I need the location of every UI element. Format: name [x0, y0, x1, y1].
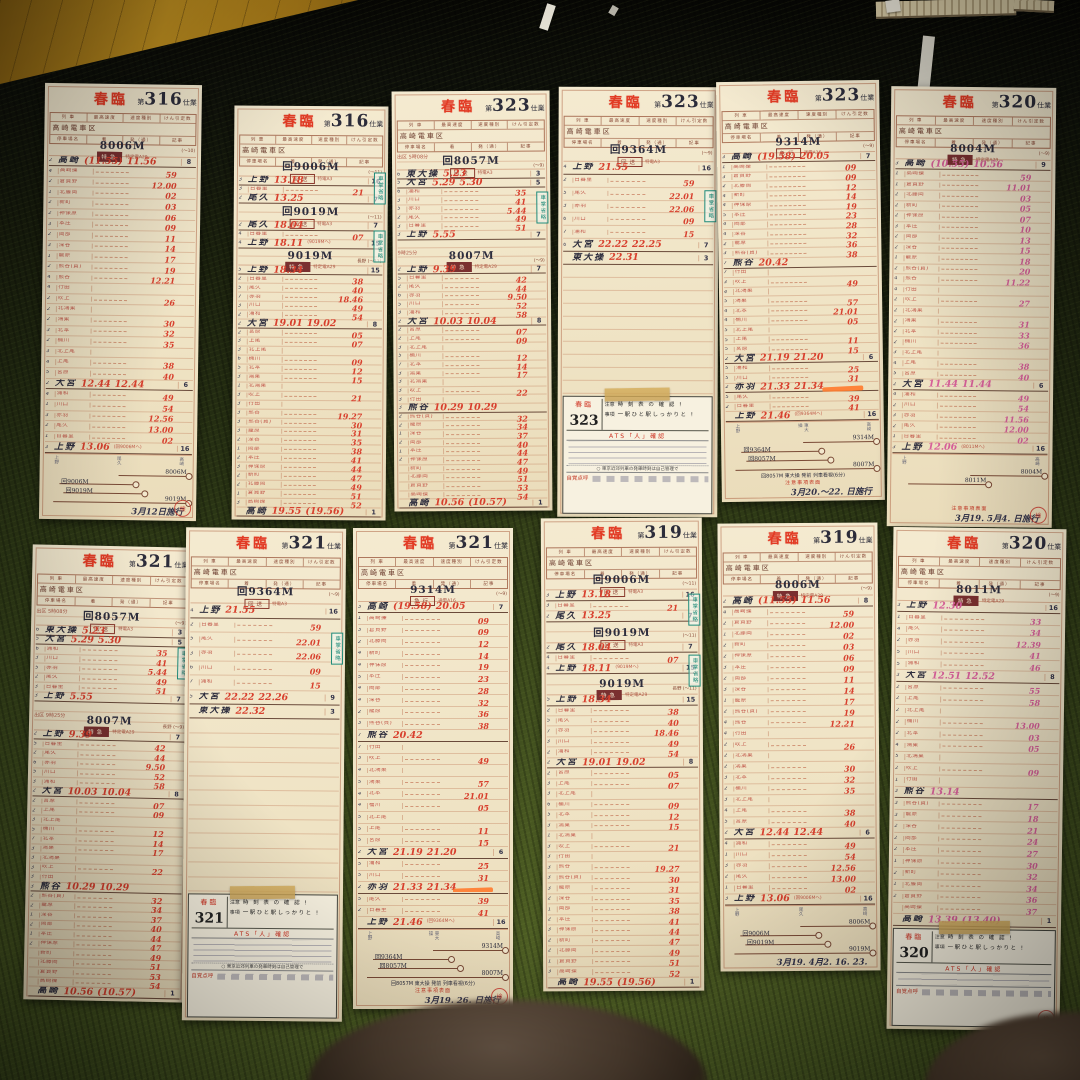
- margin-tick: 2: [894, 847, 903, 852]
- margin-tick: 2: [894, 298, 903, 303]
- self-check-row: 自覚点呼: [896, 985, 1051, 997]
- harurin-stamp: 春臨: [282, 111, 316, 131]
- diagram-train-line: 8007M: [736, 468, 877, 471]
- margin-tick: 2: [238, 321, 247, 326]
- margin-tick: 4: [723, 610, 732, 615]
- margin-tick: 4: [47, 275, 56, 280]
- margin-tick: 2: [894, 340, 903, 345]
- station-name: 赤羽: [199, 651, 235, 657]
- station-name: 岡部: [57, 232, 93, 238]
- major-station-name: 東大操: [45, 625, 78, 635]
- pass-dashes: [941, 850, 981, 852]
- major-station-name: 高崎: [58, 156, 80, 165]
- diagram-terminal-dot: [815, 932, 822, 939]
- station-name: 行田: [904, 777, 940, 783]
- pass-dashes: [405, 841, 440, 842]
- major-cell: 東大操22.32: [199, 706, 325, 717]
- pass-dashes: [79, 811, 114, 813]
- major-cell: 高崎19.55(19.56): [246, 507, 366, 517]
- station-name: 深谷: [246, 437, 282, 443]
- form-column-label: 列 車: [38, 574, 76, 583]
- footer-note: 回8057M 東大操 発前 列車看視(6分): [358, 980, 508, 987]
- station-name: 籠原: [408, 423, 444, 429]
- station-name: 神保原: [732, 654, 768, 660]
- empty-row: [189, 719, 339, 735]
- form-column-label: 速度種別: [312, 136, 348, 144]
- station-name: 深谷: [367, 698, 403, 704]
- margin-tick: 1: [897, 615, 906, 620]
- station-name: 深谷: [732, 231, 768, 237]
- margin-tick: 6: [398, 293, 407, 298]
- pass-dashes: [445, 313, 479, 314]
- train-number: 8007M: [87, 715, 133, 728]
- margin-tick: 7: [190, 680, 199, 685]
- margin-tick: 4: [546, 656, 555, 661]
- margin-tick: 1: [45, 434, 54, 439]
- station-name: 浦和: [407, 310, 443, 316]
- margin-tick: 4: [724, 720, 733, 725]
- pass-dashes: [941, 874, 981, 876]
- platform-number: 8: [169, 791, 184, 798]
- card-header: 春臨第316仕業: [50, 88, 197, 114]
- consist-note: (〜9): [863, 143, 874, 149]
- margin-tick: 2: [895, 245, 904, 250]
- pass-dashes: [82, 688, 117, 690]
- margin-tick: 4: [723, 232, 732, 237]
- station-name: 神保原: [367, 663, 403, 669]
- station-row: 7浦和15: [190, 676, 340, 692]
- card-footer: 上野東大操高崎9314M回9364M回8057M8007M回8057M 東大操 …: [726, 420, 880, 499]
- pass-dashes: [593, 658, 628, 659]
- major-station-name: 高崎: [557, 978, 579, 987]
- arrival-time: 13.25: [274, 194, 304, 204]
- margin-tick: 2: [398, 319, 407, 324]
- margin-tick: 4: [723, 194, 732, 199]
- form-column-label: 速度種別: [266, 558, 303, 566]
- major-station-name: 上野: [735, 412, 757, 421]
- margin-tick: 1: [893, 882, 902, 887]
- pass-dashes: [405, 689, 440, 690]
- margin-tick: 7: [724, 270, 733, 275]
- pass-dashes: [772, 329, 808, 330]
- pass-dashes: [770, 623, 805, 624]
- station-name: 尾久: [572, 191, 608, 197]
- margin-tick: 3: [32, 817, 41, 822]
- margin-tick: 5: [46, 370, 55, 375]
- pass-dashes: [93, 363, 126, 364]
- pass-dashes: [942, 196, 978, 197]
- station-name: 倉賀野: [904, 182, 940, 188]
- duty-number-value: 316: [331, 111, 370, 131]
- platform-number: 8: [181, 159, 196, 166]
- station-name: 行田: [903, 287, 939, 293]
- duty-number: 第321仕業: [281, 533, 341, 554]
- margin-tick: 2: [725, 875, 734, 880]
- station-name: 鴻巣: [407, 371, 443, 377]
- station-name: 熊谷(貨): [39, 893, 75, 899]
- form-column-label: 列 車: [240, 136, 276, 144]
- station-name: 本庄: [246, 455, 282, 461]
- margin-tick: 5: [725, 366, 734, 371]
- duty-prefix: 第: [654, 101, 661, 109]
- duty-number-value: 321: [288, 533, 327, 553]
- margin-tick: 2: [548, 896, 557, 901]
- diagram-train-line: 回9019M: [63, 492, 144, 494]
- station-name: 尾久: [367, 897, 403, 903]
- margin-tick: 3: [399, 397, 408, 402]
- station-name: 岡部: [903, 836, 939, 842]
- station-name: 北藤岡: [367, 639, 403, 645]
- station-name: 赤羽: [906, 638, 942, 644]
- margin-tick: 1: [48, 190, 57, 195]
- margin-tick: 7: [398, 363, 407, 368]
- conductor-omitted-badge: 車掌省略: [688, 593, 700, 625]
- margin-tick: 4: [358, 663, 367, 668]
- margin-tick: 3: [237, 500, 246, 505]
- station-name: 赤羽: [572, 204, 608, 210]
- margin-tick: 5: [398, 276, 407, 281]
- station-name: 尾久: [556, 718, 592, 724]
- station-name: 北藤岡: [38, 960, 74, 966]
- red-seal-stamp: 検: [174, 500, 191, 517]
- margin-tick: 6: [547, 802, 556, 807]
- pass-dashes: [941, 290, 977, 291]
- platform-number: 6: [178, 382, 193, 389]
- time-cell: [769, 733, 860, 734]
- station-row: 2日暮里41: [358, 906, 508, 918]
- margin-tick: 5: [35, 665, 44, 670]
- station-name: 北藤岡: [732, 632, 768, 638]
- major-station-name: 尾久: [555, 643, 577, 652]
- margin-tick: 5: [725, 347, 734, 352]
- major-station-name: 大宮: [45, 635, 67, 644]
- note-card-text-cell: 注意時 刻 表 の 確 認 !事項一駅ひと駅しっかりと !: [603, 399, 709, 430]
- major-cell: 上野18.11(9019Mヘ): [556, 663, 683, 673]
- margin-tick: 5: [547, 813, 556, 818]
- diagram-train-line: 回9364M: [373, 959, 451, 960]
- station-name: 北藤岡: [904, 192, 940, 198]
- pass-dashes: [237, 625, 272, 626]
- pass-dashes: [94, 299, 127, 300]
- pass-dashes: [446, 391, 480, 392]
- pass-dashes: [944, 630, 984, 632]
- form-sub-label: 停車場名: [723, 134, 761, 143]
- consist-note: (〜9): [496, 591, 507, 597]
- station-name: 高崎操: [58, 168, 94, 174]
- card-footer: 上野尾久高崎8006M回9006M回9019M9019M3月12日施行: [44, 453, 192, 518]
- diagram-train-line: 8006M: [800, 925, 872, 927]
- pass-dashes: [92, 416, 125, 417]
- margin-tick: 5: [724, 299, 733, 304]
- train-number: 8007M: [449, 250, 495, 262]
- station-name: 尾久: [406, 215, 442, 221]
- margin-tick: 2: [896, 696, 905, 701]
- margin-tick: 3: [546, 593, 555, 598]
- margin-tick: 3: [548, 886, 557, 891]
- note-harurin-stamp: 春臨: [898, 932, 931, 942]
- margin-tick: 2: [32, 798, 41, 803]
- margin-tick: 5: [33, 770, 42, 775]
- form-column-label: 最高速度: [760, 111, 798, 120]
- form-sub-label: 発（通）: [471, 143, 508, 151]
- margin-tick: 3: [35, 656, 44, 661]
- margin-tick: 2: [398, 337, 407, 342]
- margin-tick: 2: [724, 765, 733, 770]
- form-sub-label: 記事: [676, 139, 712, 147]
- platform-number: 8: [1044, 674, 1059, 681]
- pass-dashes: [940, 374, 976, 375]
- station-name: 吹上: [246, 392, 282, 398]
- form-columns: 列 車最高速度速度種別けん引定数: [547, 548, 696, 557]
- margin-tick: 3: [398, 233, 407, 238]
- form-column-label: 列 車: [547, 548, 585, 556]
- diagram-terminal-dot: [869, 922, 876, 929]
- train-header: (〜9)回9364M回送特電A3: [190, 589, 340, 605]
- station-name: 浦和: [556, 750, 592, 756]
- masking-tape: [230, 886, 295, 900]
- pass-dashes: [405, 654, 440, 655]
- margin-tick: 3: [237, 464, 246, 469]
- margin-tick: 2: [547, 708, 556, 713]
- station-name: 神保原: [408, 457, 444, 463]
- station-name: 籠原: [39, 903, 75, 909]
- margin-tick: 2: [893, 894, 902, 899]
- margin-tick: 2: [397, 215, 406, 220]
- pass-dashes: [595, 972, 630, 973]
- margin-tick: 5: [190, 637, 199, 642]
- pass-dashes: [770, 253, 806, 254]
- time-cell: [444, 399, 533, 400]
- diagram-terminal-dot: [457, 965, 464, 972]
- station-name: 高崎操: [246, 500, 282, 506]
- consist-note: (〜9): [861, 585, 872, 591]
- pass-dashes: [771, 711, 806, 712]
- major-station-name: 上野: [54, 443, 76, 452]
- arrival-time: 19.55: [583, 978, 613, 988]
- margin-tick: 2: [33, 751, 42, 756]
- platform-number: 6: [1033, 383, 1048, 390]
- station-name: 桶川: [55, 338, 91, 344]
- station-name: 尾久: [902, 424, 938, 430]
- margin-tick: 4: [724, 309, 733, 314]
- pass-dashes: [595, 919, 630, 920]
- station-name: 尾久: [734, 394, 770, 400]
- diagram-train-label: 8006M: [165, 469, 187, 476]
- margin-tick: 3: [35, 684, 44, 689]
- major-station-name: 高崎: [37, 987, 59, 996]
- pass-dashes: [594, 846, 629, 847]
- duty-suffix: 仕業: [1047, 543, 1061, 551]
- station-name: 行田: [408, 397, 444, 403]
- pass-dashes: [942, 746, 982, 748]
- station-name: 高崎操: [732, 610, 768, 616]
- margin-tick: 3: [398, 371, 407, 376]
- consist-note: (〜11): [683, 633, 697, 639]
- paper-scrap: [608, 5, 619, 16]
- timetable-body: (〜11)回9006M回送特電A33上野13.18163日暮里212尾久13.2…: [237, 168, 383, 518]
- note-text-1: 時 刻 表 の 確 認 !: [618, 400, 683, 408]
- timetable-body: (〜9)8006M特急特定電A292高崎(11.55)11.5684高崎操592…: [723, 584, 875, 905]
- major-station-row: 4上野18.11(9019Mヘ)15: [547, 663, 698, 674]
- timetable-body: 出区 5時08分(〜9)回8057M回送特電A36東大操5.2335大宮5.29…: [28, 606, 187, 999]
- pass-dashes: [942, 217, 978, 218]
- major-cell: 上野12.06(8011Mヘ): [901, 443, 1032, 454]
- note-text-2: 一駅ひと駅しっかりと !: [948, 943, 1025, 952]
- station-name: 北上尾: [55, 349, 91, 355]
- pass-dashes: [405, 619, 440, 620]
- conductor-omitted-badge: 車掌省略: [373, 231, 385, 263]
- duty-suffix: 仕業: [183, 99, 197, 107]
- major-station-name: 大宮: [407, 317, 429, 326]
- margin-tick: 3: [398, 311, 407, 316]
- station-name: 熊谷(貨): [732, 250, 768, 256]
- station-name: 北上尾: [367, 815, 403, 821]
- consist-note: 長野 (〜9): [163, 724, 184, 730]
- card-footer: 上野東大操高崎9314M回9364M回8057M8007M回8057M 東大操 …: [358, 929, 508, 1006]
- major-station-row: 東大操22.313: [563, 252, 713, 265]
- station-name: 浦和: [734, 365, 770, 371]
- departure-time: 18.11: [582, 664, 612, 674]
- form-sub-columns: 停車場名着発（通）記事: [398, 142, 544, 151]
- station-name: 行田: [733, 731, 769, 737]
- harurin-stamp: 春臨: [767, 528, 801, 548]
- platform-number: 8: [683, 759, 698, 766]
- station-name: 上尾: [734, 337, 770, 343]
- diagram-train-label: 8007M: [482, 970, 503, 977]
- timetable-card-323: 春臨第323仕業列 車最高速度速度種別けん引定数高崎電車区停車場名着発（通）記事…: [392, 90, 553, 511]
- station-name: 熊谷(貨): [904, 801, 940, 807]
- pass-dashes: [941, 862, 981, 864]
- train-number: 回9364M: [237, 584, 294, 600]
- pass-dashes: [95, 225, 128, 226]
- station-row: 3熊谷(貨)38: [358, 719, 508, 731]
- depot-name: 高崎電車区: [192, 565, 340, 580]
- station-name: 北本: [733, 775, 769, 781]
- margin-tick: 2: [548, 917, 557, 922]
- station-name: 日暮里: [555, 655, 591, 661]
- card-footer: 上野高崎8004M8011M注意事項表面3月19. 5月4. 日施行: [892, 453, 1048, 525]
- diagram-train-line: 9314M: [803, 441, 876, 443]
- train-number: 9019M: [599, 678, 645, 690]
- time-cell: [769, 755, 860, 756]
- margin-tick: 4: [47, 285, 56, 290]
- margin-tick: 3: [31, 855, 40, 860]
- margin-tick: 4: [46, 360, 55, 365]
- margin-tick: 2: [894, 319, 903, 324]
- platform-number: 8: [858, 597, 873, 604]
- station-name: 籠原: [733, 698, 769, 704]
- form-column-label: けん引定数: [1012, 117, 1050, 125]
- duty-prefix: 第: [813, 537, 820, 545]
- station-name: 桶川: [407, 353, 443, 359]
- station-name: 川口: [906, 650, 942, 656]
- station-name: 北本: [903, 329, 939, 335]
- pass-dashes: [940, 427, 976, 428]
- pass-dashes: [770, 634, 805, 635]
- major-station-name: 上野: [407, 231, 429, 240]
- station-name: 赤羽: [54, 413, 90, 419]
- empty-row: [563, 303, 713, 316]
- platform-number: 16: [864, 411, 879, 418]
- station-name: 浦和: [55, 391, 91, 397]
- pass-dashes: [595, 951, 630, 952]
- photo-scene: 春臨第316仕業列 車最高速度速度種別けん引定数高崎電車区停車場名着発（通）記事…: [0, 0, 1080, 1080]
- margin-tick: 3: [725, 864, 734, 869]
- platform-number: 7: [493, 604, 508, 611]
- station-name: 宮原: [734, 346, 770, 352]
- form-column-label: 最高速度: [761, 553, 798, 561]
- margin-tick: 3: [358, 721, 367, 726]
- station-name: 川口: [556, 739, 592, 745]
- major-cell: 上野21.55: [572, 163, 698, 173]
- station-name: 赤羽: [44, 665, 80, 671]
- duty-number: 第320仕業: [992, 92, 1052, 113]
- margin-tick: 2: [358, 710, 367, 715]
- station-name: 吹上: [733, 279, 769, 285]
- station-name: 熊谷: [903, 276, 939, 282]
- pass-dashes: [770, 667, 805, 668]
- margin-tick: 5: [893, 371, 902, 376]
- pass-dashes: [237, 654, 272, 655]
- form-column-label: 列 車: [565, 117, 602, 125]
- form-column-label: けん引定数: [160, 115, 196, 123]
- time-cell: 15: [608, 224, 699, 240]
- platform-number: 1: [532, 499, 547, 506]
- platform-number: 16: [1045, 605, 1060, 612]
- time-cell: [91, 352, 179, 353]
- next-train-note: (9019Mヘ): [615, 666, 638, 671]
- station-name: 新町: [57, 200, 93, 206]
- endpoint-label: 東大操: [427, 931, 439, 944]
- pass-dashes: [285, 342, 317, 343]
- station-name: 上尾: [247, 339, 283, 345]
- time-cell: [76, 878, 168, 880]
- station-name: 吹上: [56, 296, 92, 302]
- margin-tick: 2: [723, 242, 732, 247]
- form-sub-label: 記事: [837, 132, 874, 141]
- margin-tick: 2: [723, 654, 732, 659]
- duty-suffix: 仕業: [859, 536, 873, 544]
- platform-number: 16: [325, 608, 340, 615]
- train-header: 長野 (〜11)9019M特急特定電A29: [547, 684, 698, 695]
- station-name: 倉賀野: [58, 179, 94, 185]
- pass-dashes: [405, 630, 440, 631]
- consist-note: (〜9): [534, 257, 545, 263]
- pass-dashes: [595, 867, 630, 868]
- pass-dashes: [944, 641, 984, 643]
- margin-tick: 2: [546, 614, 555, 619]
- station-name: 本庄: [57, 221, 93, 227]
- card-footer: 上野尾久高崎8006M回9006M回9019M9019M3月19. 4月2. 1…: [725, 904, 875, 968]
- diagram-train-label: 回9364M: [375, 952, 402, 961]
- major-station-name: 東大操: [572, 253, 605, 262]
- margin-tick: 3: [399, 389, 408, 394]
- time-cell: [939, 311, 1035, 312]
- pass-dashes: [770, 612, 805, 613]
- platform-number: 3: [325, 709, 340, 716]
- pass-dashes: [94, 320, 127, 321]
- duty-suffix: 仕業: [860, 94, 874, 102]
- margin-tick: 3: [237, 411, 246, 416]
- station-name: 日暮里: [199, 622, 235, 628]
- cardboard-box-edge-2: [1014, 0, 1055, 13]
- major-cell: 高崎10.56(10.57): [37, 987, 164, 999]
- form-column-label: 速度種別: [798, 553, 835, 561]
- margin-tick: 2: [896, 708, 905, 713]
- station-name: 宮原: [556, 770, 592, 776]
- pass-dashes: [96, 182, 129, 183]
- margin-tick: 2: [30, 894, 39, 899]
